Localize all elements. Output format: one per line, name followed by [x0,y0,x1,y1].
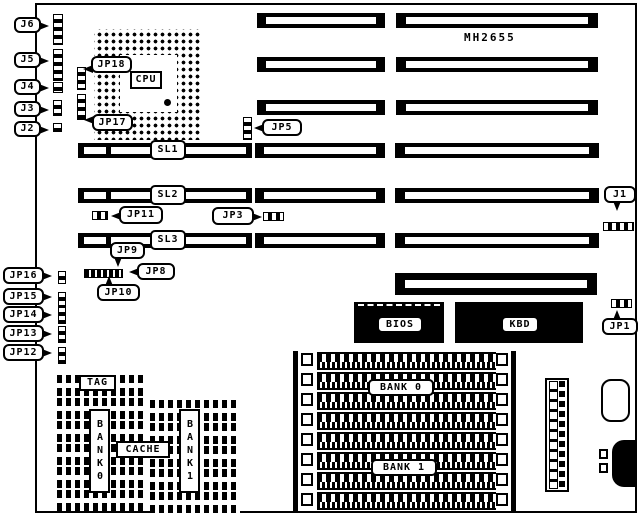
keyboard-din-connector [612,440,637,487]
cache-chip-row [150,492,240,513]
motherboard-diagram: CPU MH2655 SL1 SL2 SL3 J6 J5 J4 J3 J2 JP… [0,0,640,520]
callout-jp13: JP13 [3,325,44,342]
jumper-j2 [53,123,62,132]
power-connector [545,378,569,492]
isa-slot-1-right [396,13,598,28]
callout-jp10-label: JP10 [104,288,132,298]
cpu-pin1-dot [164,99,171,106]
isa-slot-2-right [396,57,598,72]
callout-jp10: JP10 [97,284,140,301]
callout-jp5-label: JP5 [271,123,292,133]
callout-jp18: JP18 [91,56,132,73]
callout-jp11-label: JP11 [127,210,155,220]
callout-jp16: JP16 [3,267,44,284]
callout-jp3-label: JP3 [222,211,243,221]
callout-j3-label: J3 [20,104,34,114]
callout-jp13-label: JP13 [9,329,37,339]
jumper-jp13 [58,326,66,343]
isa-slot-sl1-mid [255,143,385,158]
simm-socket [291,352,518,370]
isa-slot-3-right [396,100,598,115]
isa-slot-3-left [257,100,385,115]
jumper-j5 [53,49,63,81]
callout-j6-label: J6 [20,20,34,30]
simm-socket [291,432,518,450]
callout-j5: J5 [14,52,41,68]
jumper-jp5 [243,117,252,140]
jumper-jp1 [611,299,632,308]
slot-label-sl1: SL1 [150,140,186,160]
din-connector-pin [599,463,608,473]
callout-j1-label: J1 [613,190,627,200]
jumper-j1 [603,222,634,231]
callout-jp15: JP15 [3,288,44,305]
callout-jp12: JP12 [3,344,44,361]
simm-socket [291,412,518,430]
callout-j2-label: J2 [20,124,34,134]
cache-chip-row [57,490,143,511]
callout-jp17: JP17 [92,114,133,131]
jumper-jp11 [92,211,108,220]
isa-slot-1-left [257,13,385,28]
callout-j2: J2 [14,121,41,137]
jumper-j6 [53,14,63,45]
callout-jp11: JP11 [119,206,163,224]
callout-jp14: JP14 [3,306,44,323]
isa-slot-sl3-mid [255,233,385,248]
kbd-label: KBD [501,316,539,333]
cache-bank0-label: BANK0 [89,409,110,493]
callout-j1: J1 [604,186,636,203]
callout-jp5: JP5 [262,119,302,136]
callout-jp14-label: JP14 [9,310,37,320]
crystal-outline [601,379,630,422]
bank1-label: BANK 1 [371,459,437,476]
isa-slot-sl1-right [395,143,599,158]
jumper-jp12 [58,347,66,364]
model-number: MH2655 [464,31,516,44]
callout-jp16-label: JP16 [9,271,37,281]
simm-socket [291,492,518,510]
tag-ram-label: TAG [79,375,116,391]
slot-label-sl3: SL3 [150,230,186,250]
din-connector-pin [599,449,608,459]
callout-j3: J3 [14,101,41,117]
bios-label: BIOS [377,316,423,333]
jumper-j3 [53,100,62,116]
callout-j5-label: J5 [20,55,34,65]
jumper-jp3 [263,212,284,221]
isa-slot-7 [395,273,597,295]
cpu-label: CPU [130,71,162,89]
bank0-label: BANK 0 [368,379,434,396]
isa-slot-sl3-right [395,233,599,248]
bios-socket-dashes [358,304,440,306]
jumper-jp8-jp9-jp10 [84,269,123,278]
isa-slot-sl2-right [395,188,599,203]
callout-jp8-label: JP8 [145,267,166,277]
callout-jp9-label: JP9 [117,246,138,256]
callout-jp9: JP9 [110,242,145,259]
callout-jp18-label: JP18 [97,60,125,70]
callout-j4-label: J4 [20,82,34,92]
jumper-j4 [53,82,63,93]
isa-slot-2-left [257,57,385,72]
callout-j4: J4 [14,79,41,95]
jumper-jp14 [58,307,66,324]
slot-label-sl2: SL2 [150,185,186,205]
callout-jp17-label: JP17 [98,118,126,128]
cache-bank1-label: BANK1 [179,409,200,493]
callout-j6: J6 [14,17,41,33]
callout-jp1: JP1 [602,318,638,335]
callout-jp12-label: JP12 [9,348,37,358]
jumper-jp16 [58,271,66,284]
cache-label: CACHE [116,441,170,458]
jumper-jp15 [58,292,66,307]
callout-jp1-label: JP1 [609,322,630,332]
callout-jp3: JP3 [212,207,254,225]
callout-jp8: JP8 [137,263,175,280]
isa-slot-sl2-mid [255,188,385,203]
callout-jp15-label: JP15 [9,292,37,302]
